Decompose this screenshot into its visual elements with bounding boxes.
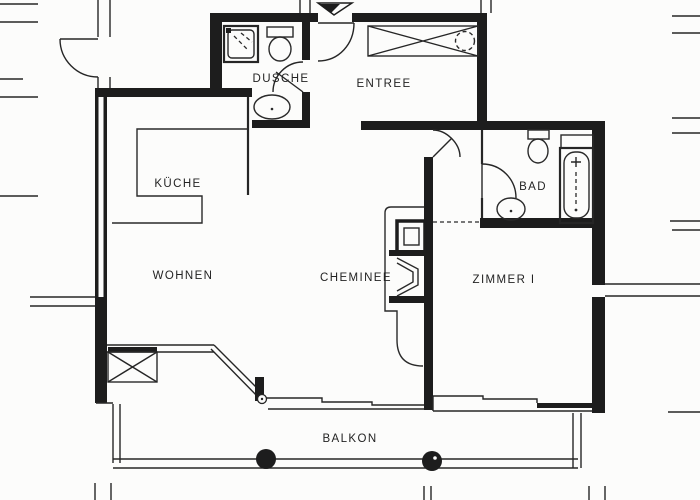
toilet-icon [528,130,549,163]
wardrobe-icon [368,26,478,56]
room-label-cheminee: CHEMINEE [320,272,392,284]
window-box-cross [108,347,157,382]
room-label-entree: ENTREE [356,78,411,90]
kitchen-counter [112,129,248,223]
room-label-dusche: DUSCHE [253,73,310,85]
windows [107,345,592,411]
stairwell-door-arc [60,39,98,77]
balcony-column [422,451,442,471]
bathtub-icon [560,135,593,223]
bottom-ticks [95,483,605,500]
vestibule-door-arc [433,130,460,157]
entrance-arrow-icon [318,3,352,15]
balcony-column [256,449,276,469]
room-label-zimmer-i: ZIMMER I [473,274,536,286]
room-label-kueche: KÜCHE [154,178,201,190]
floor-plan-page: KÜCHE DUSCHE ENTREE BAD WOHNEN CHEMINEE … [0,0,700,500]
room-label-balkon: BALKON [322,433,377,445]
room-label-wohnen: WOHNEN [153,270,214,282]
balcony-left-edge [113,404,120,463]
shower-icon [224,26,258,62]
ceiling-light-icon [456,32,475,51]
entrance-door-arc [318,23,354,61]
balcony-right-edge [573,413,581,468]
washbasin-icon [497,198,525,220]
apartment-walls [95,13,605,413]
floor-plan: KÜCHE DUSCHE ENTREE BAD WOHNEN CHEMINEE … [0,0,700,500]
bad-door-arc [482,164,516,198]
fireplace-icon [385,207,426,366]
balcony-railing [113,459,578,468]
room-label-bad: BAD [519,181,547,193]
washbasin-icon [254,95,290,119]
toilet-icon [267,27,293,61]
wohnen-south-window [266,398,424,409]
